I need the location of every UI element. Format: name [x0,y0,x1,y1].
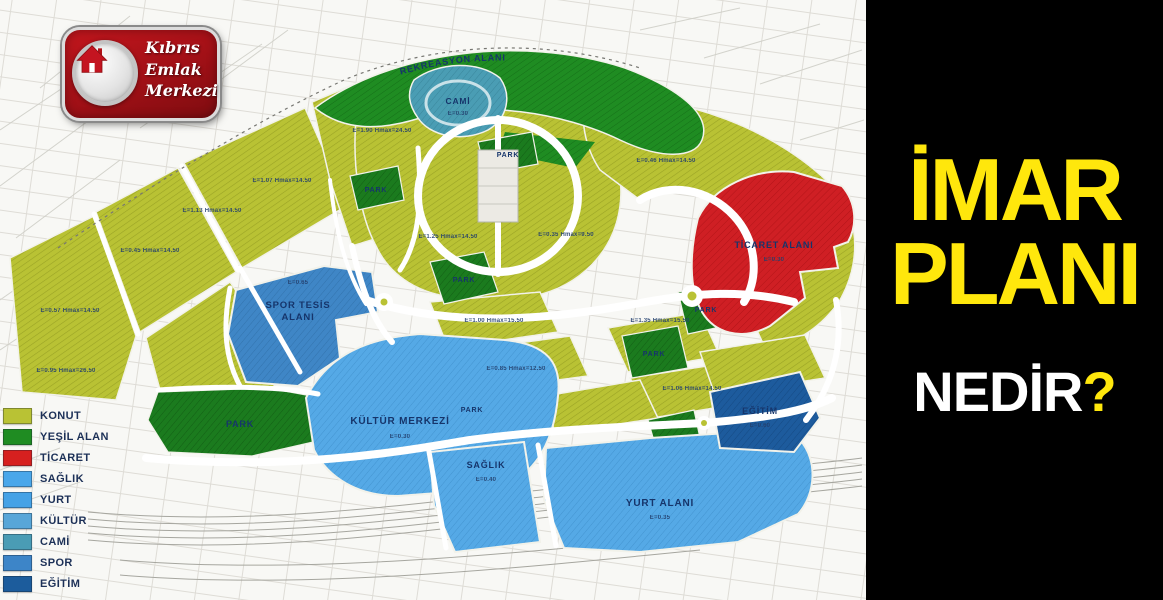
logo-emblem [72,40,138,106]
legend-swatch [3,555,32,571]
zone-label-park: PARK [453,277,476,284]
zone-label-kultur: KÜLTÜR MERKEZİ [350,414,449,427]
logo-text-line2: Emlak [145,59,218,81]
parcel-code: E=0.95 Hmax=26.50 [36,368,96,374]
parcel-code: E=1.90 Hmax=24.50 [352,128,412,134]
zone-code-egitim: E=0.60 [750,423,771,429]
legend-label: EĞİTİM [40,578,80,590]
zone-code-ticaret: E=0.30 [764,257,785,263]
legend-label: KONUT [40,410,81,422]
zone-label-spor-1: SPOR TESİS [265,300,330,311]
legend: KONUTYEŞİL ALANTİCARETSAĞLIKYURTKÜLTÜRCA… [3,407,109,592]
panel-title: İMAR PLANI [890,148,1139,315]
legend-item-2: TİCARET [3,449,109,466]
parcel-code: E=0.46 Hmax=14.50 [636,158,696,164]
legend-label: TİCARET [40,452,90,464]
legend-swatch [3,408,32,424]
legend-swatch [3,513,32,529]
parcel-code: E=1.00 Hmax=15.50 [464,318,524,324]
parcel-code: E=1.35 Hmax=15.50 [630,318,690,324]
logo-text-line3: Merkezi [145,80,218,102]
zone-label-egitim: EĞİTİM [742,405,778,416]
zone-label-park: PARK [497,152,520,159]
legend-item-1: YEŞİL ALAN [3,428,109,445]
zone-code-cami: E=0.30 [448,111,469,117]
legend-item-6: CAMİ [3,533,109,550]
company-logo: Kıbrıs Emlak Merkezi [62,27,220,121]
zone-label-park: PARK [226,419,254,429]
legend-item-5: KÜLTÜR [3,512,109,529]
zone-label-park: PARK [643,351,666,358]
zone-label-ticaret: TİCARET ALANI [734,240,813,250]
zone-code-saglik: E=0.40 [476,477,497,483]
legend-label: KÜLTÜR [40,515,87,527]
zone-code-kultur: E=0.30 [390,434,411,440]
panel-subtitle: NEDİR? [913,359,1115,424]
zone-label-spor-2: ALANI [281,312,314,323]
house-icon [76,44,108,74]
right-panel: İMAR PLANI NEDİR? [866,0,1163,600]
parcel-code: E=1.13 Hmax=14.50 [182,208,242,214]
zone-label-yurt: YURT ALANI [626,498,694,509]
legend-label: SPOR [40,557,73,569]
zone-label-saglik: SAĞLIK [467,459,506,470]
zone-code-spor: E=0.65 [288,280,309,286]
legend-swatch [3,450,32,466]
panel-title-line2: PLANI [890,232,1139,316]
legend-item-8: EĞİTİM [3,575,109,592]
zone-label-park: PARK [365,187,388,194]
parcel-code: E=1.07 Hmax=14.50 [252,178,312,184]
legend-swatch [3,492,32,508]
parcel-code: E=0.85 Hmax=12.50 [486,366,546,372]
logo-text-line1: Kıbrıs [145,37,218,59]
logo-text: Kıbrıs Emlak Merkezi [145,37,218,102]
legend-label: CAMİ [40,536,70,548]
legend-label: SAĞLIK [40,473,84,485]
zoning-map-area: REKREASYON ALANI CAMİ E=0.30 SPOR TESİS … [0,0,866,600]
zone-label-cami: CAMİ [446,96,471,106]
panel-subtitle-text: NEDİR [913,360,1082,423]
page: REKREASYON ALANI CAMİ E=0.30 SPOR TESİS … [0,0,1163,600]
legend-item-3: SAĞLIK [3,470,109,487]
legend-item-4: YURT [3,491,109,508]
zone-code-yurt: E=0.35 [650,515,671,521]
zone-label-park: PARK [695,307,718,314]
legend-swatch [3,471,32,487]
parcel-code: E=0.35 Hmax=9.50 [538,232,594,238]
legend-item-0: KONUT [3,407,109,424]
panel-question-mark: ? [1083,360,1116,423]
parcel-code: E=0.45 Hmax=14.50 [120,248,180,254]
legend-swatch [3,576,32,592]
legend-label: YEŞİL ALAN [40,431,109,443]
legend-item-7: SPOR [3,554,109,571]
central-parking-block [478,150,518,222]
panel-title-line1: İMAR [890,148,1139,232]
parcel-code: E=0.57 Hmax=14.50 [40,308,100,314]
parcel-code: E=1.06 Hmax=14.50 [662,386,722,392]
legend-label: YURT [40,494,72,506]
parcel-code: E=1.25 Hmax=14.50 [418,234,478,240]
legend-swatch [3,534,32,550]
legend-swatch [3,429,32,445]
zone-label-park: PARK [461,407,484,414]
